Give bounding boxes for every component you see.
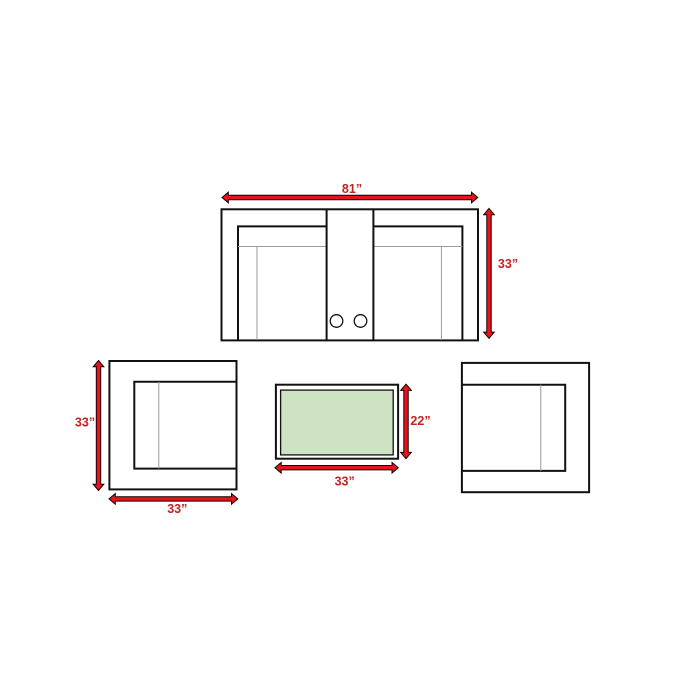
- svg-text:33”: 33”: [167, 502, 187, 516]
- svg-text:33”: 33”: [498, 257, 518, 271]
- svg-text:81”: 81”: [342, 182, 362, 196]
- svg-text:22”: 22”: [410, 414, 430, 428]
- svg-text:33”: 33”: [75, 415, 95, 429]
- svg-text:33”: 33”: [335, 474, 355, 488]
